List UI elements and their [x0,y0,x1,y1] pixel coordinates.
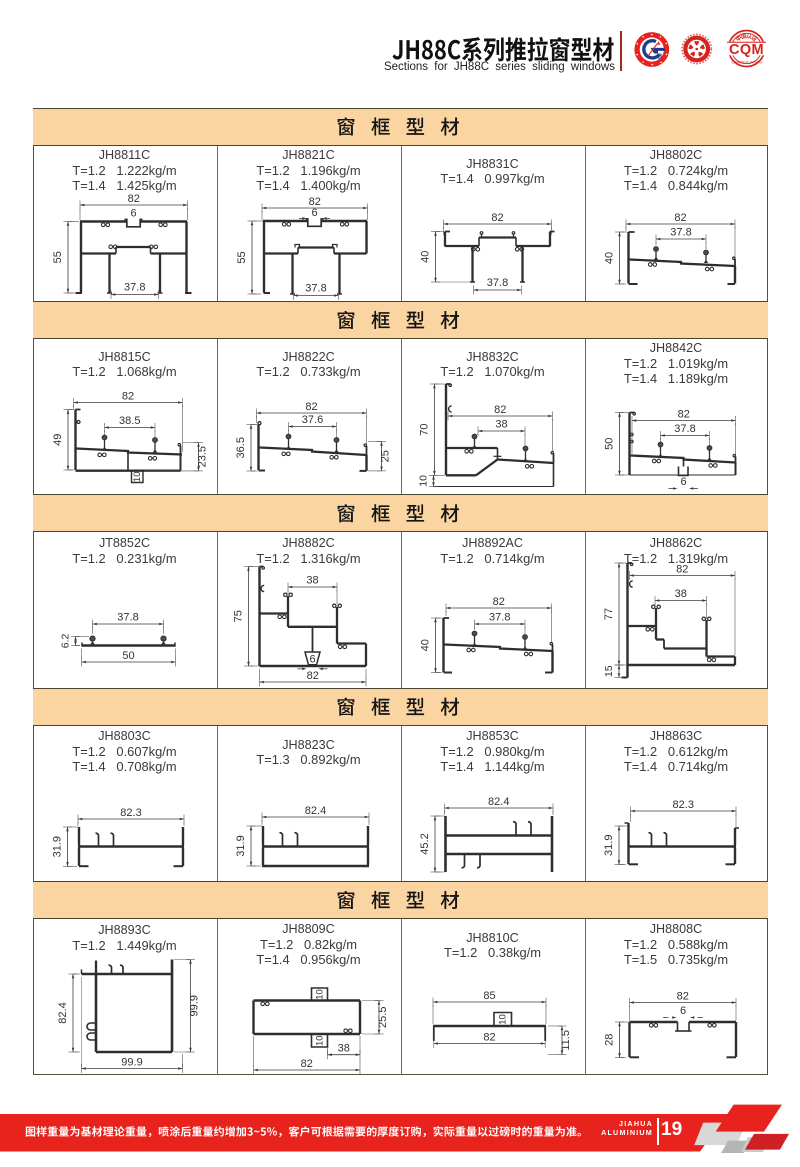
svg-text:37.6: 37.6 [302,414,323,426]
svg-text:23.5: 23.5 [197,446,209,467]
svg-text:50: 50 [604,438,616,450]
svg-text:6.2: 6.2 [60,634,72,649]
svg-text:82: 82 [493,596,505,608]
svg-text:82: 82 [122,390,134,402]
svg-text:6: 6 [680,1005,686,1017]
svg-text:82: 82 [305,401,317,413]
svg-text:40: 40 [604,252,616,264]
svg-text:50: 50 [122,650,134,662]
svg-text:10: 10 [418,475,430,487]
svg-text:75: 75 [233,610,245,622]
svg-text:45.2: 45.2 [419,833,431,854]
svg-text:82: 82 [494,404,506,416]
svg-text:82: 82 [674,212,686,224]
svg-text:6: 6 [130,208,136,220]
svg-text:82: 82 [307,670,319,682]
svg-text:82: 82 [678,408,690,420]
svg-text:15: 15 [603,665,615,677]
svg-text:10: 10 [498,1014,509,1025]
svg-text:25: 25 [380,450,392,462]
svg-text:82.3: 82.3 [120,807,141,819]
svg-text:10: 10 [132,472,143,483]
svg-text:37.8: 37.8 [117,611,138,623]
svg-text:10: 10 [314,989,325,1000]
svg-text:31.9: 31.9 [235,835,247,856]
svg-text:40: 40 [420,251,432,263]
svg-text:82.3: 82.3 [673,799,694,811]
svg-text:49: 49 [52,434,64,446]
svg-text:70: 70 [419,424,431,436]
svg-text:82.4: 82.4 [57,1002,69,1023]
svg-text:37.8: 37.8 [124,282,145,294]
svg-text:82: 82 [676,563,688,575]
svg-text:11.5: 11.5 [560,1030,572,1051]
svg-text:37.8: 37.8 [670,226,691,238]
svg-text:99.9: 99.9 [121,1056,142,1068]
svg-text:82: 82 [483,1031,495,1043]
svg-text:38: 38 [495,418,507,430]
svg-text:77: 77 [603,608,615,620]
svg-text:38: 38 [338,1042,350,1054]
svg-text:36.5: 36.5 [235,437,247,458]
svg-text:6: 6 [309,654,315,666]
svg-text:38: 38 [306,574,318,586]
svg-text:6: 6 [680,476,686,488]
svg-text:37.8: 37.8 [305,283,326,295]
svg-text:37.8: 37.8 [487,277,508,289]
svg-text:82.4: 82.4 [305,805,326,817]
svg-text:37.8: 37.8 [489,611,510,623]
svg-text:25.5: 25.5 [377,1007,389,1028]
svg-text:31.9: 31.9 [603,835,615,856]
svg-text:10: 10 [314,1035,325,1046]
svg-text:38.5: 38.5 [119,415,140,427]
svg-text:28: 28 [604,1034,616,1046]
svg-text:99.9: 99.9 [189,995,201,1016]
svg-text:82: 82 [677,990,689,1002]
svg-text:6: 6 [311,207,317,219]
svg-text:82: 82 [309,196,321,208]
svg-text:82: 82 [491,212,503,224]
svg-text:37.8: 37.8 [674,423,695,435]
svg-text:38: 38 [675,588,687,600]
svg-text:82: 82 [301,1058,313,1070]
svg-text:82: 82 [128,193,140,205]
svg-text:55: 55 [236,251,248,263]
svg-text:31.9: 31.9 [52,836,64,857]
svg-text:40: 40 [420,639,432,651]
svg-text:55: 55 [52,251,64,263]
svg-text:82.4: 82.4 [488,796,509,808]
svg-text:85: 85 [483,990,495,1002]
